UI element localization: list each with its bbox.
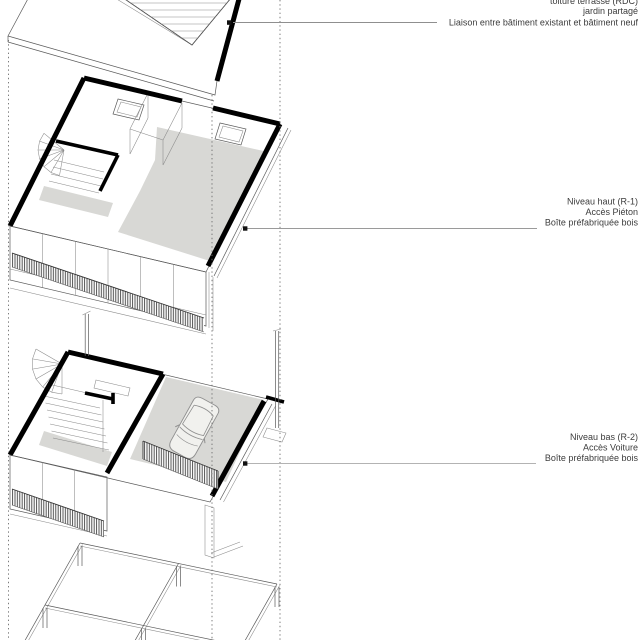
chimney-post-left [83, 311, 91, 356]
r1-spiral-staircase [38, 133, 104, 193]
r2-corner-post [205, 505, 214, 558]
r1-wall-ne-b [213, 108, 280, 124]
label-car-access: Accès Voiture [583, 443, 638, 453]
label-liaison: Liaison entre bâtiment existant et bâtim… [449, 18, 639, 28]
r1-wall-interior-a [56, 141, 118, 155]
roof-thick-edge-wall [217, 0, 239, 81]
r2-wall-ne [68, 352, 163, 374]
connection-wedge [92, 0, 240, 45]
exploded-axonometric-page: toiture terrasse (RDC) jardin partagé Li… [0, 0, 640, 640]
leader-dot-upper [243, 226, 247, 230]
exploded-axonometric-drawing: toiture terrasse (RDC) jardin partagé Li… [0, 0, 640, 640]
r2-interior-partition [48, 380, 130, 404]
leader-dot-lower [243, 461, 247, 465]
label-lower-level: Niveau bas (R-2) [570, 432, 638, 442]
label-upper-level: Niveau haut (R-1) [567, 197, 638, 207]
annotation-upper-level: Niveau haut (R-1) Accès Piéton Boîte pré… [243, 197, 638, 231]
r2-guardrail-hatch [12, 489, 104, 537]
chimney-post-right [263, 329, 286, 442]
label-prefab-box-upper: Boîte préfabriquée bois [545, 218, 639, 228]
r1-wall-interior-b [100, 155, 118, 191]
wedge-contour-lines [92, 3, 240, 38]
leader-dot-roof [227, 20, 232, 25]
annotation-roof: toiture terrasse (RDC) jardin partagé Li… [227, 0, 638, 28]
foundation-frame [10, 543, 280, 640]
r1-skylight-box [113, 99, 144, 120]
annotation-lower-level: Niveau bas (R-2) Accès Voiture Boîte pré… [243, 432, 638, 466]
projection-dashed-lines [9, 0, 281, 640]
label-prefab-box-lower: Boîte préfabriquée bois [545, 453, 639, 463]
r2-wall-stub [266, 397, 284, 402]
label-shared-garden: jardin partagé [582, 6, 638, 16]
roof-slab-edge [8, 42, 214, 101]
upper-level-plan [10, 78, 291, 334]
roof-plate [8, 0, 240, 95]
chimney-post-base [263, 428, 286, 442]
label-pedestrian-access: Accès Piéton [585, 207, 638, 217]
lower-level-plan [10, 311, 286, 558]
